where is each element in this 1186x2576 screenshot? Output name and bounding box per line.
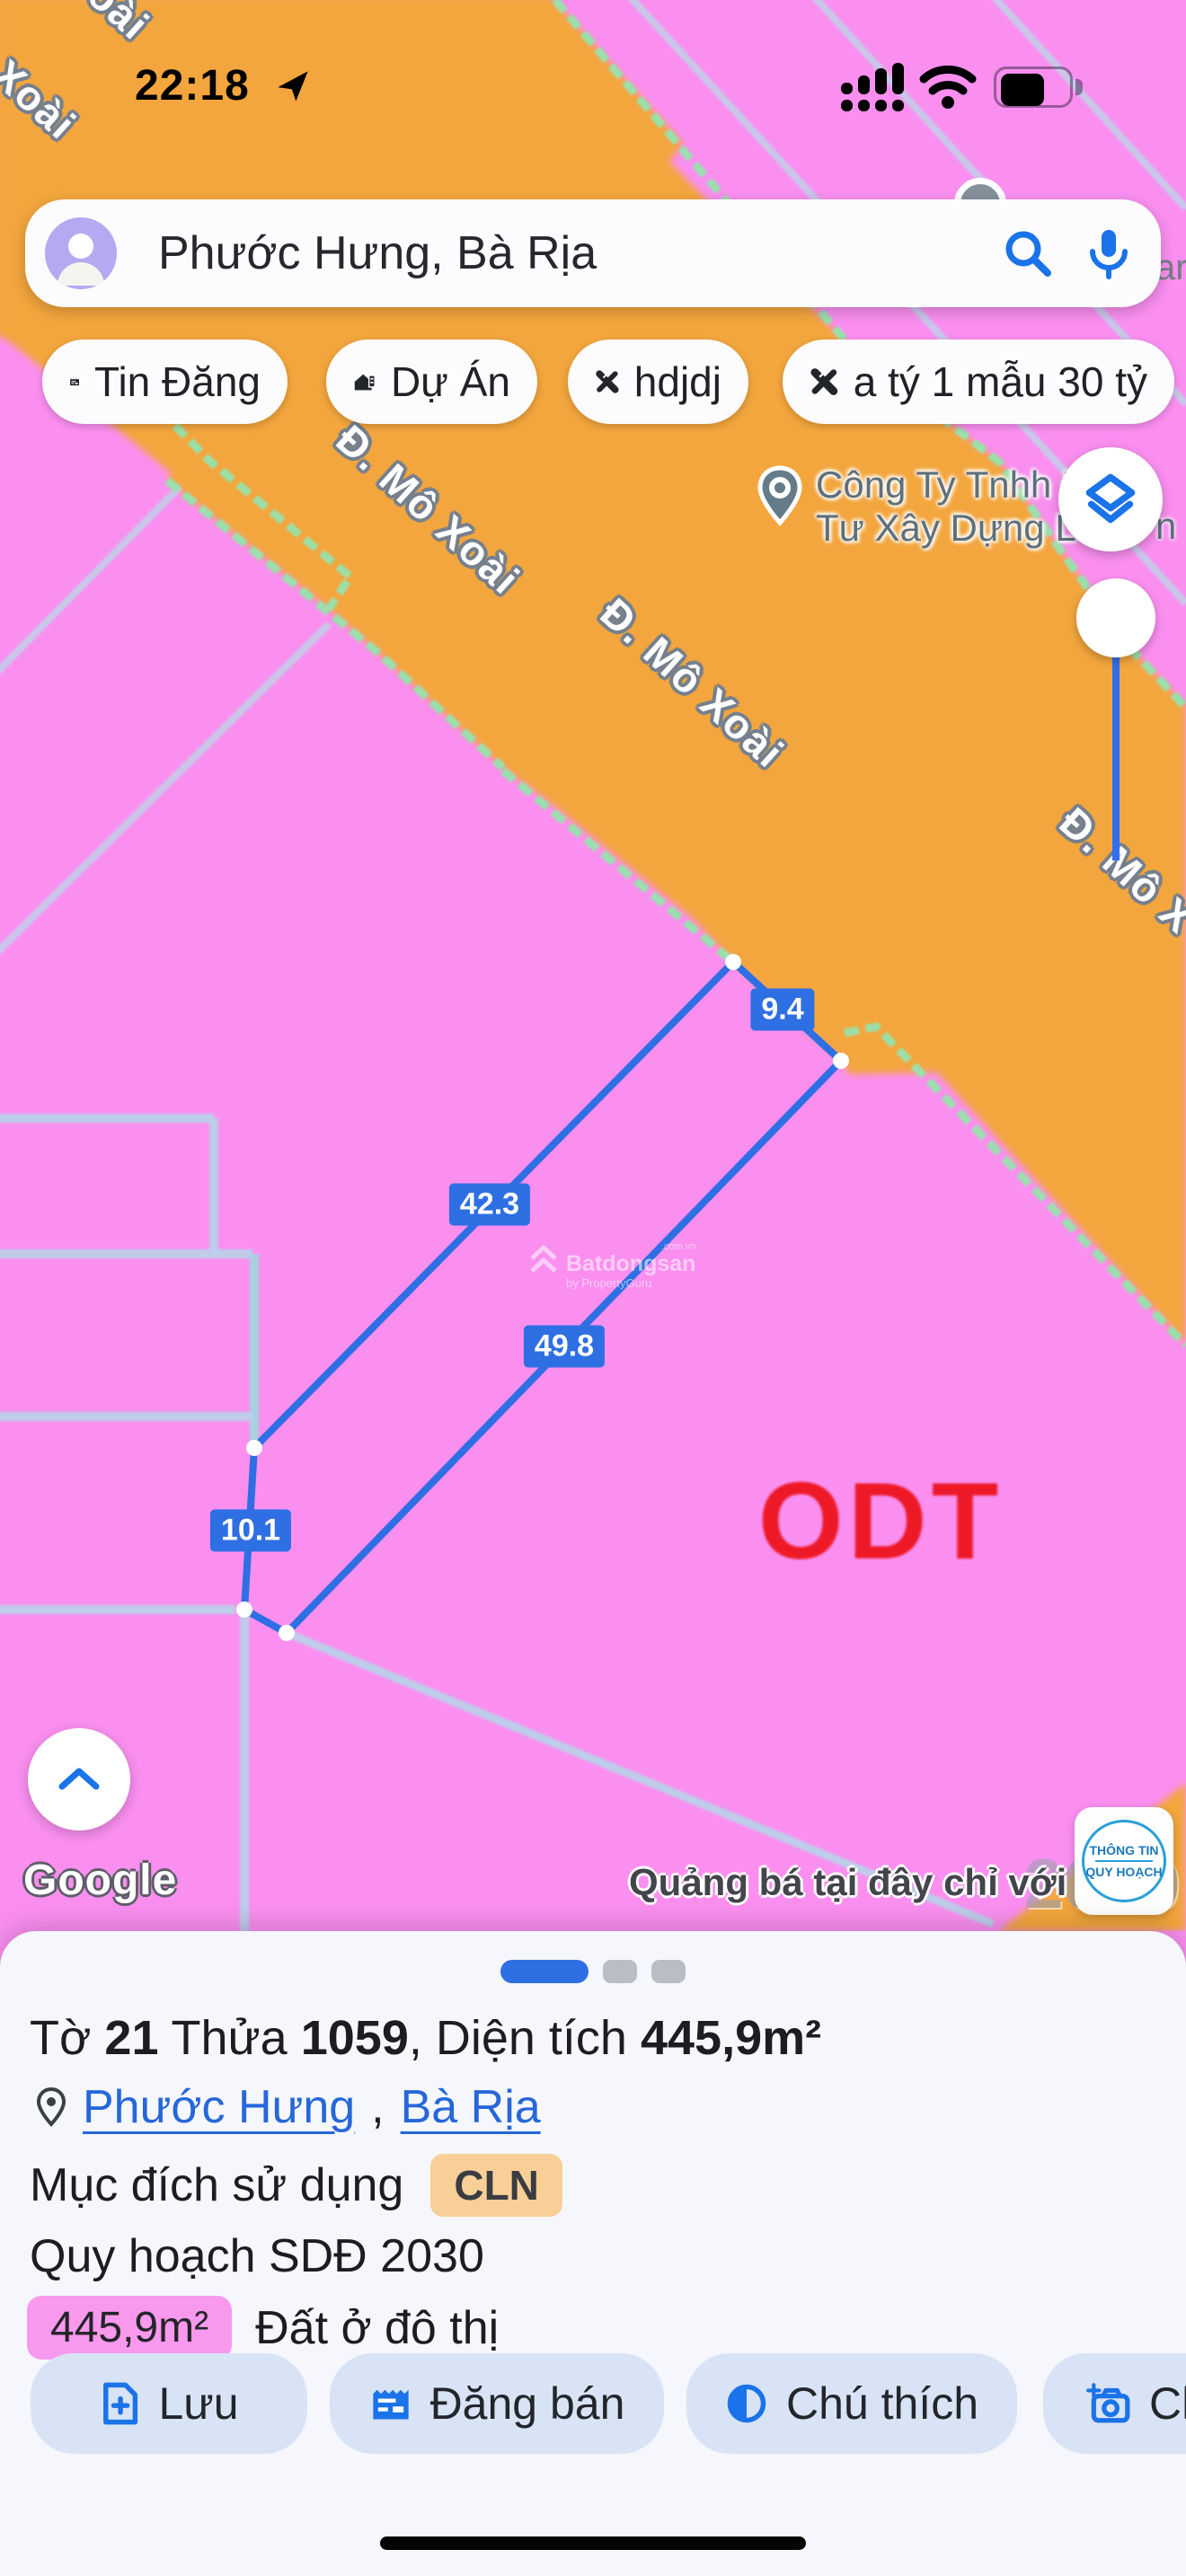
search-icon[interactable] [999,225,1057,282]
layers-icon [1084,472,1137,526]
purpose-code-badge: CLN [430,2154,562,2217]
location-separator: , [371,2080,384,2134]
newspaper-icon [69,361,80,402]
chip-saved-list-a-ty[interactable]: a tý 1 mẫu 30 tỷ [783,340,1174,424]
planning-badge-line2: QUY HOẠCH [1085,1865,1162,1879]
collapse-sheet-button[interactable] [28,1728,130,1831]
save-file-icon [99,2381,140,2426]
measurement-label-49-8: 49.8 [524,1326,605,1368]
chevron-up-icon [55,1763,103,1795]
company-poi-label[interactable]: Công Ty Tnhh Đ Tư Xây Dựng Lê [816,463,1097,550]
page-dot-active[interactable] [500,1960,589,1983]
ad-attribution-text: Quảng bá tại đây chỉ với [629,1861,1067,1904]
camera-plus-icon [1086,2382,1131,2425]
chip-label: Tin Đăng [94,357,261,406]
camera-button[interactable]: Ch [1043,2353,1186,2454]
measurement-label-42-3: 42.3 [449,1184,530,1226]
measurement-label-9-4: 9.4 [750,989,814,1031]
page-dot[interactable] [603,1960,637,1983]
plot-number: 1059 [301,2011,409,2065]
ward-link[interactable]: Phước Hưng [83,2080,355,2134]
wifi-icon [918,63,978,114]
google-logo: Google [23,1856,177,1905]
action-label: Lưu [158,2378,238,2430]
page-dot[interactable] [651,1960,686,1983]
parcel-title: Tờ 21 Thửa 1059, Diện tích 445,9m² [30,2010,821,2066]
ruler-pencil-icon [810,361,839,402]
legend-contrast-icon [725,2382,768,2425]
location-pin-icon [36,2087,66,2127]
chip-saved-list-hdjdj[interactable]: hdjdj [568,340,748,424]
zoning-row: 445,9m² Đất ở đô thị [27,2296,499,2360]
company-poi-label-line2: Tư Xây Dựng Lê [816,507,1097,550]
mic-icon[interactable] [1080,225,1137,282]
save-button[interactable]: Lưu [31,2353,307,2454]
title-part: Tờ [30,2011,104,2065]
house-sign-icon [353,361,376,402]
parcel-area: 445,9m² [641,2011,821,2065]
search-bar[interactable]: Phước Hưng, Bà Rịa [25,199,1161,307]
chip-tin-dang[interactable]: Tin Đăng [42,340,288,424]
watermark-byline: by PropertyGuru [566,1277,695,1289]
zoning-label: Đất ở đô thị [255,2301,499,2355]
title-part: Thửa [158,2011,300,2065]
planning-badge-line1: THÔNG TIN [1090,1843,1159,1857]
search-input[interactable]: Phước Hưng, Bà Rịa [158,226,999,280]
action-label: Ch [1149,2378,1186,2430]
action-label: Đăng bán [430,2378,625,2430]
batdongsan-logo-icon [528,1242,559,1278]
chip-label: Dự Án [391,357,510,406]
cellular-signal-icon [841,63,906,110]
batdongsan-watermark: .com.vn Batdongsan by PropertyGuru [528,1242,695,1289]
page-indicator [0,1960,1186,1983]
phone-screen: oài Xoài Đ. Mô Xoài Đ. Mô Xoài Đ. Mô X a… [0,0,1186,2576]
location-arrow-icon [275,68,311,109]
land-purpose-row: Mục đích sử dụng CLN [30,2154,562,2217]
location-row: Phước Hưng , Bà Rịa [36,2080,541,2134]
map-slider-thumb[interactable] [1076,578,1155,657]
plan-label: Quy hoạch SDĐ 2030 [30,2229,484,2283]
avatar[interactable] [45,217,117,289]
planning-info-badge[interactable]: THÔNG TIN QUY HOẠCH [1075,1807,1173,1915]
legend-button[interactable]: Chú thích [686,2353,1017,2454]
chip-du-an[interactable]: Dự Án [326,340,537,424]
purpose-label: Mục đích sử dụng [30,2158,403,2212]
chip-label: hdjdj [634,357,721,406]
action-label: Chú thích [786,2378,978,2430]
zoning-area-badge: 445,9m² [27,2296,232,2360]
zoning-code-odt: ODT [758,1458,1004,1584]
status-time: 22:18 [135,61,250,110]
post-listing-icon [369,2382,412,2425]
chip-label: a tý 1 mẫu 30 tỷ [854,357,1147,406]
company-poi-label-line1: Công Ty Tnhh Đ [816,463,1097,507]
ruler-pencil-icon [595,361,620,402]
sheet-number: 21 [104,2011,158,2065]
battery-icon [994,66,1084,108]
company-poi-pin[interactable] [757,465,803,533]
home-indicator[interactable] [380,2536,806,2550]
title-part: , Diện tích [409,2011,641,2065]
measurement-label-10-1: 10.1 [210,1510,291,1552]
layers-button[interactable] [1058,447,1163,551]
map-slider-line [1112,654,1120,860]
watermark-brand: Batdongsan [566,1253,695,1275]
post-listing-button[interactable]: Đăng bán [330,2353,664,2454]
planning-info-logo: THÔNG TIN QUY HOẠCH [1082,1820,1166,1902]
city-link[interactable]: Bà Rịa [401,2080,541,2134]
